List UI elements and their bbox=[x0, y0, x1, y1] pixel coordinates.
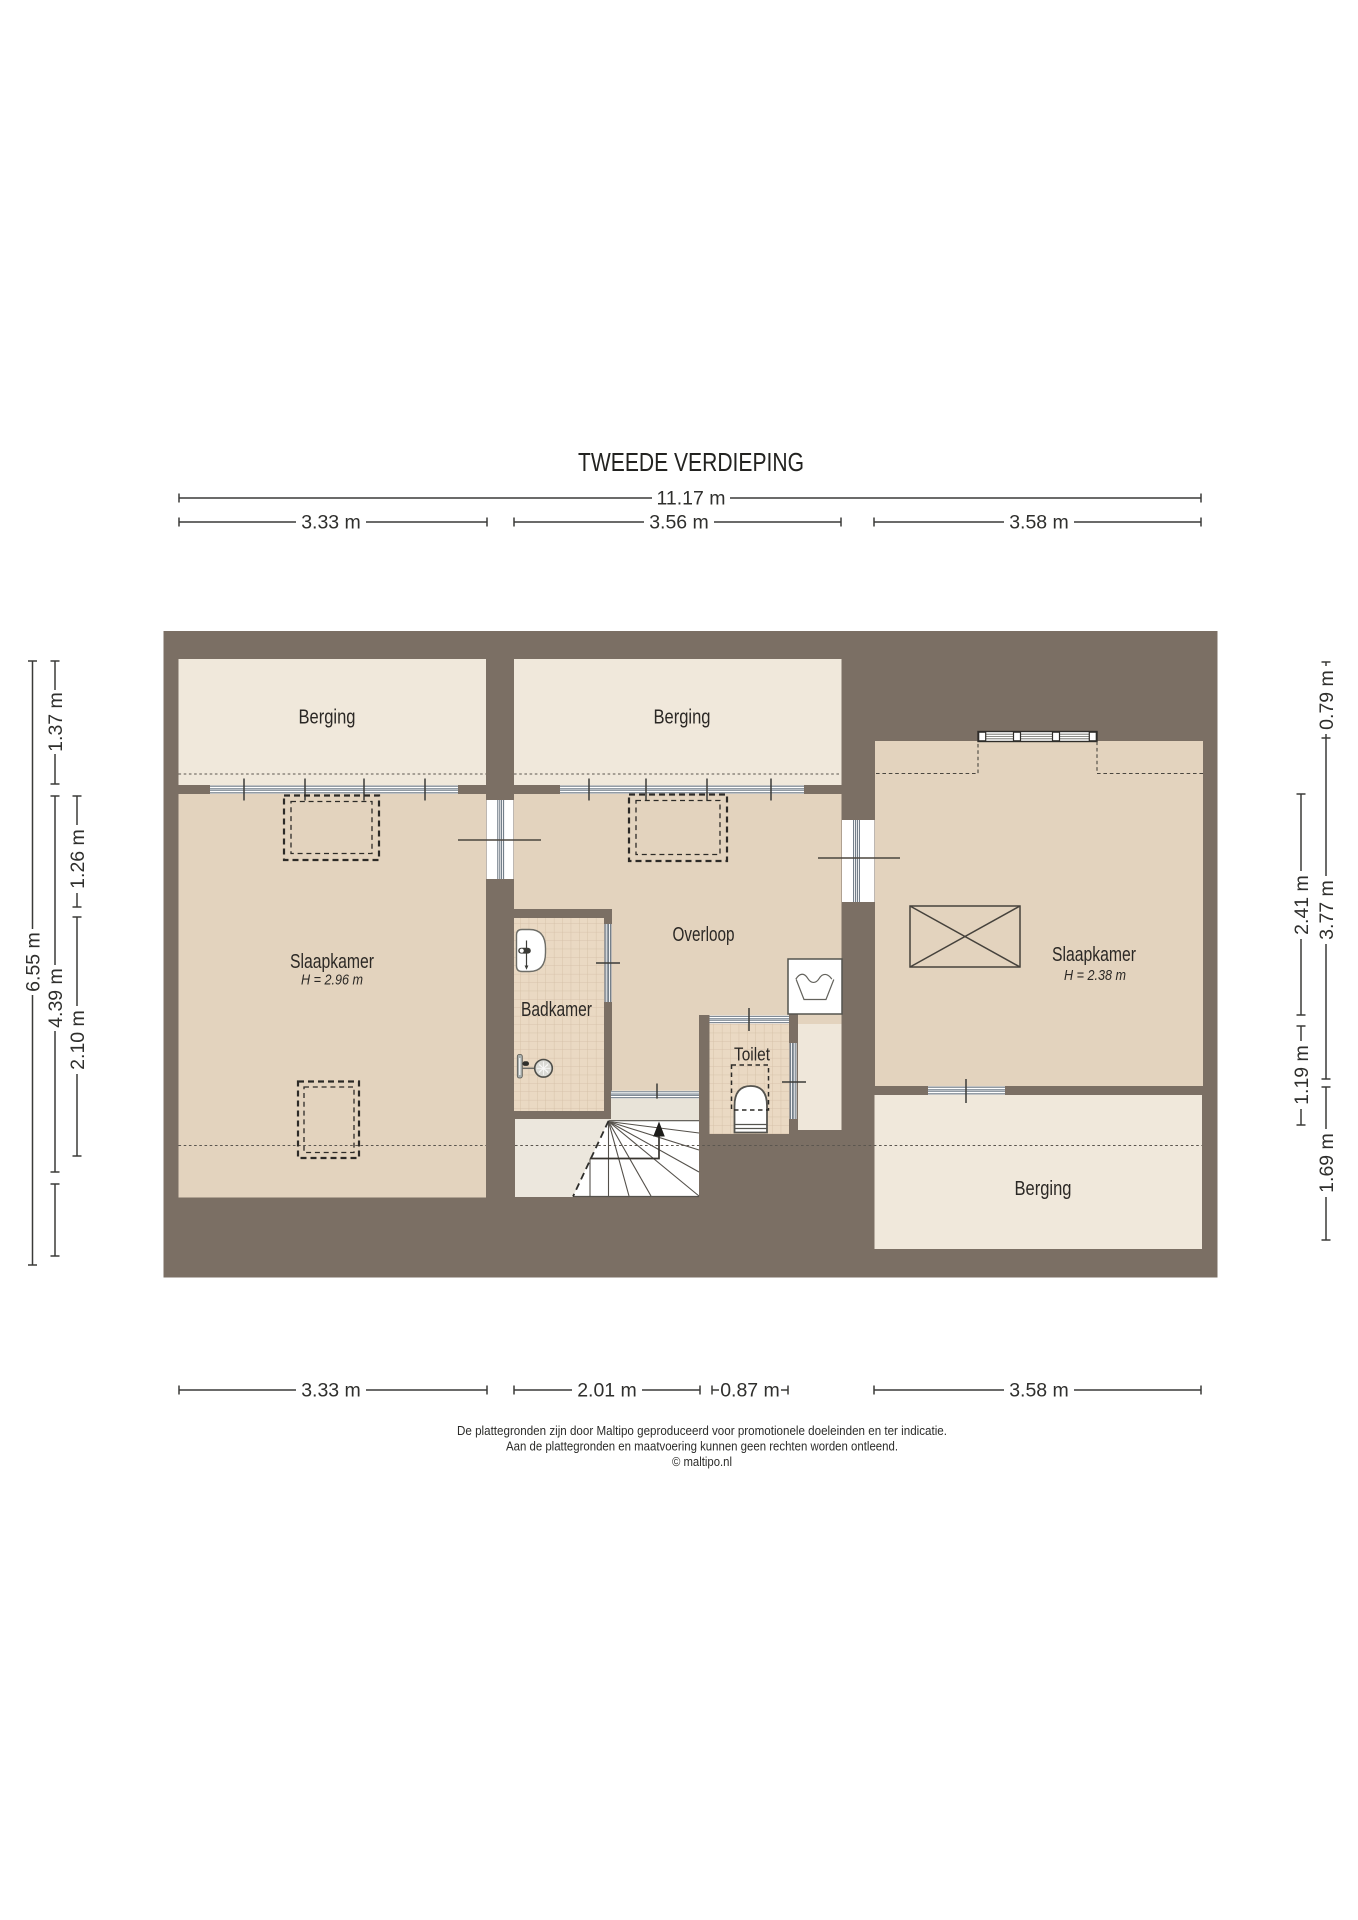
svg-text:3.56 m: 3.56 m bbox=[649, 512, 709, 534]
svg-text:Berging: Berging bbox=[1015, 1178, 1072, 1200]
svg-text:Berging: Berging bbox=[299, 707, 356, 729]
svg-text:Aan de plattegronden en maatvo: Aan de plattegronden en maatvoering kunn… bbox=[506, 1440, 898, 1454]
svg-text:2.41 m: 2.41 m bbox=[1291, 875, 1313, 935]
svg-text:11.17 m: 11.17 m bbox=[656, 488, 725, 510]
svg-text:2.01 m: 2.01 m bbox=[577, 1380, 637, 1402]
svg-text:Badkamer: Badkamer bbox=[521, 999, 592, 1021]
svg-text:Slaapkamer: Slaapkamer bbox=[1052, 944, 1136, 966]
svg-text:3.77 m: 3.77 m bbox=[1316, 880, 1338, 940]
svg-text:Berging: Berging bbox=[654, 707, 711, 729]
svg-text:1.69 m: 1.69 m bbox=[1316, 1133, 1338, 1193]
svg-text:TWEEDE VERDIEPING: TWEEDE VERDIEPING bbox=[578, 447, 804, 477]
svg-text:4.39 m: 4.39 m bbox=[45, 968, 67, 1028]
svg-text:2.10 m: 2.10 m bbox=[67, 1010, 89, 1070]
svg-text:3.33 m: 3.33 m bbox=[301, 1380, 361, 1402]
svg-text:0.79 m: 0.79 m bbox=[1316, 670, 1338, 730]
svg-text:1.37 m: 1.37 m bbox=[45, 692, 67, 752]
svg-text:© maltipo.nl: © maltipo.nl bbox=[672, 1455, 732, 1469]
svg-text:Toilet: Toilet bbox=[734, 1044, 770, 1065]
svg-text:3.33 m: 3.33 m bbox=[301, 512, 361, 534]
svg-text:H = 2.96 m: H = 2.96 m bbox=[301, 973, 363, 989]
svg-text:1.26 m: 1.26 m bbox=[67, 829, 89, 889]
svg-text:1.19 m: 1.19 m bbox=[1291, 1045, 1313, 1105]
svg-text:De plattegronden zijn door Mal: De plattegronden zijn door Maltipo gepro… bbox=[457, 1424, 947, 1438]
svg-text:0.87 m: 0.87 m bbox=[720, 1380, 780, 1402]
svg-text:3.58 m: 3.58 m bbox=[1009, 1380, 1069, 1402]
svg-text:Overloop: Overloop bbox=[673, 924, 735, 946]
svg-text:3.58 m: 3.58 m bbox=[1009, 512, 1069, 534]
svg-text:Slaapkamer: Slaapkamer bbox=[290, 951, 374, 973]
svg-text:H = 2.38 m: H = 2.38 m bbox=[1064, 968, 1126, 984]
svg-text:6.55 m: 6.55 m bbox=[23, 932, 45, 992]
